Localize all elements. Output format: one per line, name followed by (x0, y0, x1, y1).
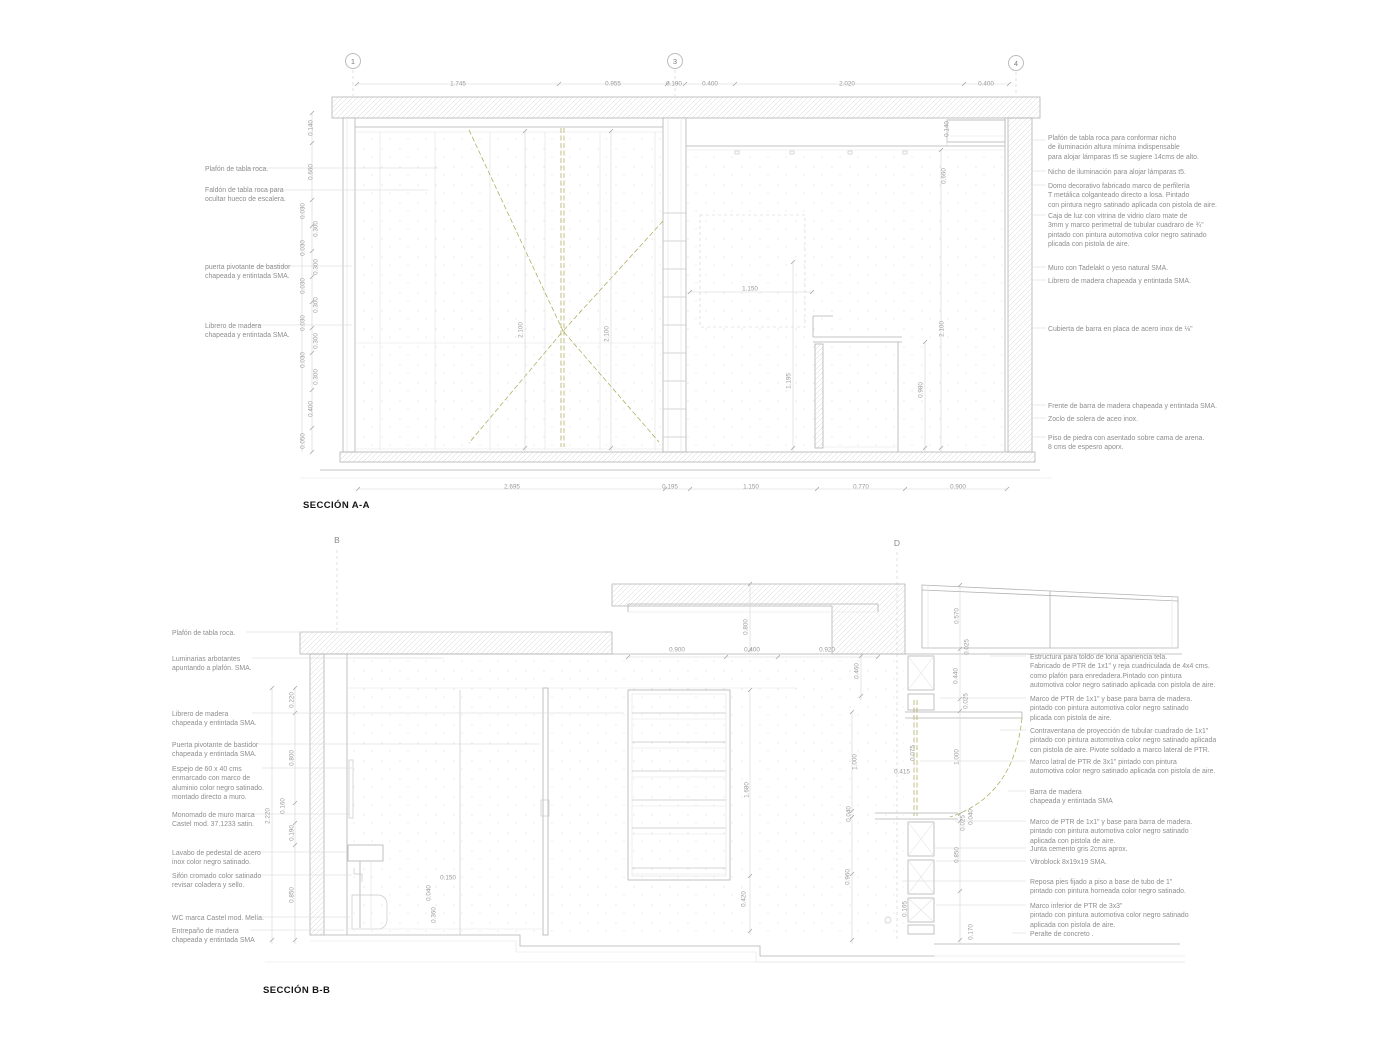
dimension-label: 0.570 (954, 608, 961, 624)
dimension-label: 0.195 (662, 484, 678, 491)
grid-marker: 3 (667, 53, 683, 69)
dimension-label: 0.170 (968, 924, 975, 940)
grid-marker: 4 (1008, 55, 1024, 71)
annotation-label: Plafón de tabla roca para conformar nich… (1048, 134, 1199, 162)
section-marker: D (894, 538, 900, 548)
annotation-label: Marco latral de PTR de 3x1" pintado con … (1030, 758, 1215, 777)
annotation-label: Contraventana de proyección de tubular c… (1030, 727, 1216, 755)
annotation-label: Lavabo de pedestal de acero inox color n… (172, 849, 261, 868)
dimension-label: 0.660 (308, 164, 315, 180)
dimension-label: 0.030 (300, 240, 307, 256)
annotation-label: Nicho de iluminación para alojar lámpara… (1048, 168, 1186, 177)
annotation-label: Reposa pies fijado a piso a base de tubo… (1030, 878, 1186, 897)
dimension-label: 0.050 (300, 433, 307, 449)
dimension-label: 0.075 (910, 745, 917, 761)
dimension-label: 0.400 (744, 647, 760, 654)
dimension-label: 0.300 (313, 369, 320, 385)
section-marker: B (334, 535, 340, 545)
dimension-label: 0.030 (300, 278, 307, 294)
dimension-label: 0.030 (300, 315, 307, 331)
annotation-label: Librero de madera chapeada y entintada S… (1048, 277, 1191, 286)
annotation-label: Marco de PTR de 1x1" y base para barra d… (1030, 695, 1192, 723)
section-a-drawing (247, 70, 1052, 491)
dimension-label: 0.770 (853, 484, 869, 491)
dimension-label: 2.100 (518, 322, 525, 338)
dimension-label: 1.150 (742, 286, 758, 293)
dimension-label: 2.100 (604, 326, 611, 342)
dimension-label: 2.220 (265, 808, 272, 824)
annotation-label: Marco de PTR de 1x1" y base para barra d… (1030, 818, 1192, 846)
dimension-label: 0.415 (894, 769, 910, 776)
dimension-label: 1.000 (954, 749, 961, 765)
dimension-label: 1.680 (744, 782, 751, 798)
dimension-label: 0.190 (666, 81, 682, 88)
annotation-label: Muro con Tadelakt o yeso natural SMA. (1048, 264, 1168, 273)
grid-marker: 1 (345, 53, 361, 69)
dimension-label: 0.150 (440, 875, 456, 882)
annotation-label: Faldón de tabla roca para ocultar hueco … (205, 186, 286, 205)
dimension-label: 0.300 (313, 297, 320, 313)
dimension-label: 0.300 (313, 221, 320, 237)
dimension-label: 0.300 (313, 333, 320, 349)
dimension-label: 1.195 (786, 373, 793, 389)
annotation-label: Espejo de 60 x 40 cms enmarcado con marc… (172, 765, 264, 802)
dimension-label: 0.900 (669, 647, 685, 654)
annotation-label: Zoclo de solera de aceo inox. (1048, 415, 1138, 424)
dimension-label: 0.900 (950, 484, 966, 491)
dimension-label: 0.040 (968, 809, 975, 825)
dimension-label: 1.000 (852, 754, 859, 770)
annotation-label: Caja de luz con vitrina de vidrio claro … (1048, 212, 1207, 249)
annotation-label: Estructura para toldo de lona apariencia… (1030, 653, 1215, 690)
annotation-label: Barra de madera chapeada y entintada SMA (1030, 788, 1113, 807)
annotation-label: Cubierta de barra en placa de acero inox… (1048, 325, 1193, 334)
dimension-label: 0.040 (426, 885, 433, 901)
annotation-label: Frente de barra de madera chapeada y ent… (1048, 402, 1217, 411)
dimension-label: 1.150 (743, 484, 759, 491)
dimension-label: 0.980 (918, 382, 925, 398)
dimension-label: 2.695 (504, 484, 520, 491)
dimension-label: 0.400 (978, 81, 994, 88)
section-b-title: SECCIÓN B-B (263, 985, 330, 996)
dimension-label: 0.850 (289, 887, 296, 903)
annotation-label: Peralte de concreto . (1030, 930, 1094, 939)
dimension-label: 0.025 (964, 639, 971, 655)
dimension-label: 0.030 (300, 203, 307, 219)
dimension-label: 2.020 (839, 81, 855, 88)
dimension-label: 0.460 (854, 663, 861, 679)
dimension-label: 0.420 (741, 891, 748, 907)
annotation-label: Luminarias arbotantes apuntando a plafón… (172, 655, 252, 674)
dimension-label: 0.440 (953, 668, 960, 684)
dimension-label: 1.745 (450, 81, 466, 88)
annotation-label: Vitroblock 8x19x19 SMA. (1030, 858, 1107, 867)
annotation-label: WC marca Castel mod. Melía. (172, 914, 264, 923)
dimension-label: 0.850 (954, 847, 961, 863)
annotation-label: Librero de madera chapeada y entintada S… (205, 322, 290, 341)
dimension-label: 0.960 (845, 869, 852, 885)
dimension-label: 0.140 (308, 120, 315, 136)
section-b-drawing (246, 550, 1185, 962)
dimension-label: 0.800 (743, 619, 750, 635)
dimension-label: 0.025 (963, 693, 970, 709)
annotation-label: Domo decorativo fabricado marco de perfi… (1048, 182, 1217, 210)
dimension-label: 0.300 (313, 259, 320, 275)
dimension-label: 0.400 (308, 401, 315, 417)
dimension-label: 0.955 (605, 81, 621, 88)
dimension-label: 0.800 (289, 750, 296, 766)
dimension-label: 0.220 (289, 692, 296, 708)
dimension-label: 0.400 (702, 81, 718, 88)
dimension-label: 0.030 (300, 352, 307, 368)
annotation-label: Marco inferior de PTR de 3x3" pintado co… (1030, 902, 1189, 930)
dimension-label: 0.165 (902, 901, 909, 917)
annotation-label: Junta cemento gris 2cms aprox. (1030, 845, 1128, 854)
annotation-label: Plafón de tabla roca. (205, 165, 268, 174)
annotation-label: Plafón de tabla roca. (172, 629, 235, 638)
dimension-label: 0.160 (280, 798, 287, 814)
annotation-label: Entrepaño de madera chapeada y entintada… (172, 927, 255, 946)
annotation-label: Monomado de muro marca Castel mod. 37.12… (172, 811, 255, 830)
dimension-label: 2.100 (939, 321, 946, 337)
annotation-label: Puerta pivotante de bastidor chapeada y … (172, 741, 258, 760)
annotation-label: Sifón cromado color satinado revisar col… (172, 872, 261, 891)
annotation-label: Librero de madera chapeada y entintada S… (172, 710, 257, 729)
dimension-label: 0.025 (960, 815, 967, 831)
dimension-label: 0.190 (289, 825, 296, 841)
drawing-sheet: 134 1.7450.9550.1900.4002.0200.4002.6950… (0, 0, 1400, 1050)
section-a-title: SECCIÓN A-A (303, 500, 370, 511)
dimension-label: 0.040 (846, 806, 853, 822)
dimension-label: 0.660 (941, 168, 948, 184)
annotation-label: Piso de piedra con asentado sobre cama d… (1048, 434, 1204, 453)
dimension-label: 0.140 (944, 121, 951, 137)
dimension-label: 0.360 (431, 907, 438, 923)
annotation-label: puerta pivotante de bastidor chapeada y … (205, 263, 290, 282)
dimension-label: 0.920 (819, 647, 835, 654)
